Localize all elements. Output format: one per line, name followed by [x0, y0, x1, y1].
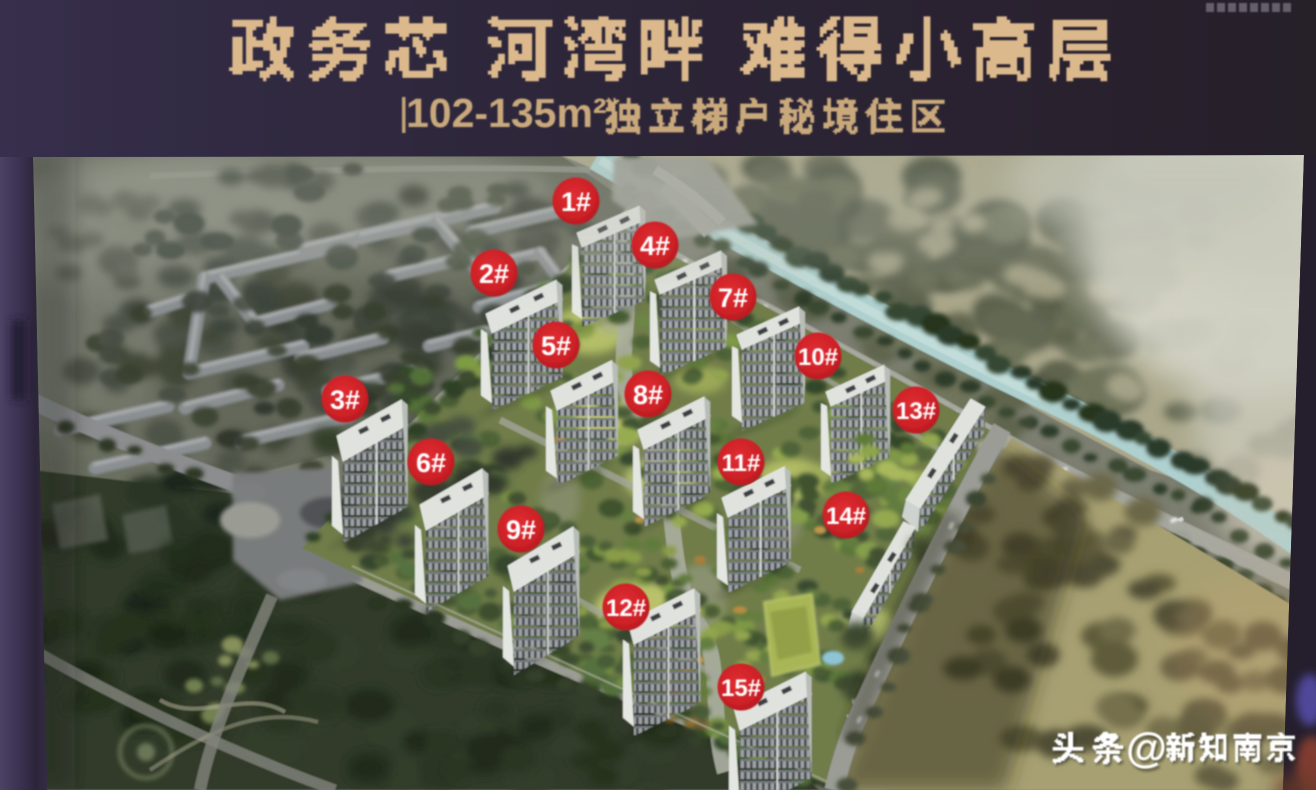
svg-text:1#: 1#: [561, 187, 591, 217]
svg-text:15#: 15#: [721, 675, 761, 702]
svg-text:9#: 9#: [506, 515, 536, 545]
svg-text:3#: 3#: [330, 385, 360, 415]
svg-text:11#: 11#: [722, 450, 761, 477]
svg-text:10#: 10#: [798, 344, 838, 371]
svg-text:14#: 14#: [826, 503, 866, 530]
svg-text:7#: 7#: [718, 283, 748, 313]
svg-text:2#: 2#: [479, 259, 509, 289]
svg-text:@: @: [1126, 724, 1167, 771]
svg-text:6#: 6#: [416, 448, 446, 478]
svg-text:13#: 13#: [896, 398, 936, 425]
svg-text:102-135m²: 102-135m²: [406, 90, 607, 136]
svg-text:5#: 5#: [541, 331, 571, 361]
svg-text:4#: 4#: [640, 231, 670, 261]
svg-text:12#: 12#: [606, 595, 646, 622]
svg-text:8#: 8#: [633, 380, 663, 410]
